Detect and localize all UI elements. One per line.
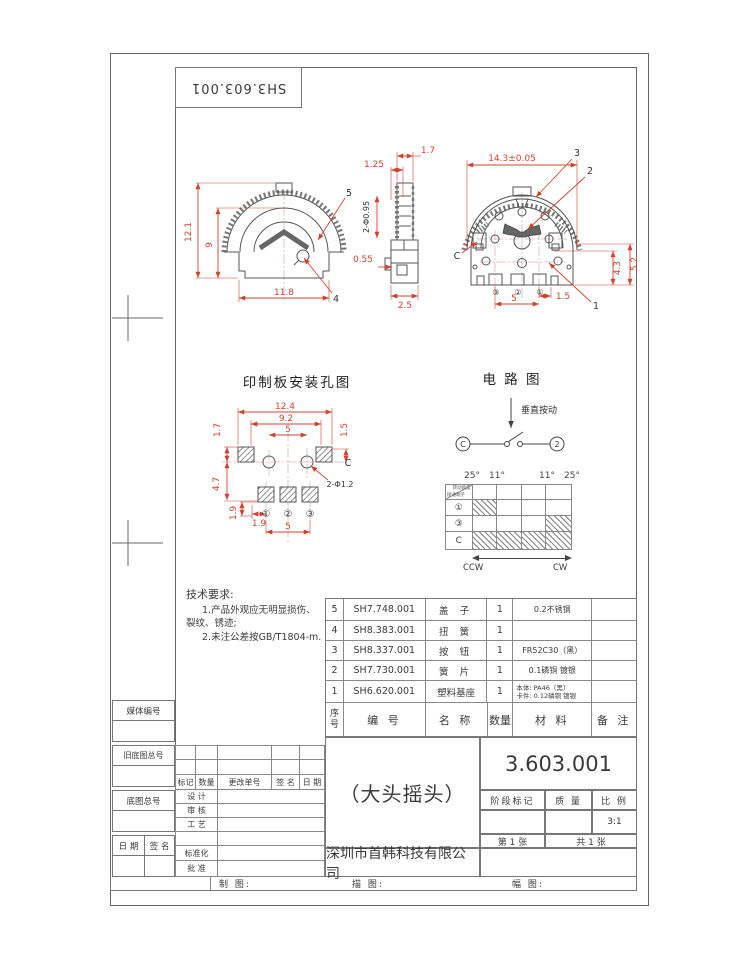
bom-row: 3 SH8.337.001 按 钮 1 FR52C30（黑） [326,641,637,661]
media-number-label: 媒体编号 [126,705,160,717]
doc-code-rotated: SH3.603.001 [191,80,286,95]
bom-code: SH8.383.001 [344,621,426,640]
corner-bottom-label: 接通端子 [447,493,465,498]
old-base-number-value [112,765,175,787]
date-sign-header: 日 期 签 名 [112,835,175,856]
bom-material [513,621,592,640]
old-base-number-cell: 旧底图总号 [112,745,175,766]
bom-qty: 1 [487,621,513,640]
scale-label: 比 例 [601,794,628,807]
tech-req-title: 技术要求: [186,588,336,602]
bom-seq: 4 [326,621,344,640]
mass-value-cell [545,810,592,834]
angle-grid-corner: 转动角度 接通端子 [446,485,473,499]
angle-tick: 25° [464,471,480,481]
tech-req-line: 2.未注公差按GB/T1804-m. [186,631,336,645]
media-number-value [112,720,175,742]
cw-label: CW [553,563,567,573]
scale-value-cell: 3:1 [592,810,637,834]
bom-remark [592,621,637,640]
bom-row: 1 SH6.620.001 塑料基座 1 本体: PA46（黑） 卡件: 0.1… [326,681,637,703]
angle-tick: 11° [539,471,555,481]
bom-qty: 1 [487,661,513,680]
sig-label: 审 核 [175,804,218,817]
bom-qty: 1 [487,641,513,660]
bom-header-remark: 备 注 [592,703,637,736]
bom-name: 簧 片 [426,661,488,680]
sig-label: 工 艺 [175,818,218,831]
rev-h-date: 日 期 [300,775,325,789]
media-number-cell: 媒体编号 [112,700,175,721]
angle-row-label: C [446,532,473,549]
tech-req-line: 裂纹、锈迹; [186,617,336,631]
bom-header-seq: 序号 [326,703,344,736]
bom-seq: 5 [326,599,344,620]
bom-table: 5 SH7.748.001 盖 子 1 0.2不锈钢 4 SH8.383.001… [325,598,637,737]
bom-name: 扭 簧 [426,621,488,640]
ccw-label: CCW [463,563,483,573]
bom-name: 塑料基座 [426,681,488,702]
sign-label: 签 名 [145,836,174,855]
angle-row-label: ① [446,500,473,515]
sheet-total-cell: 共 1 张 [545,834,637,848]
rev-h-qty: 数量 [196,775,218,789]
stage-label: 阶段标记 [490,794,534,807]
angle-row-label: ③ [446,516,473,531]
title-block-empty-cell [480,848,637,877]
scale-value: 3:1 [607,817,621,827]
technical-requirements: 技术要求: 1.产品外观应无明显损伤、 裂纹、锈迹; 2.未注公差按GB/T18… [186,588,336,644]
bom-material: FR52C30（黑） [513,641,592,660]
bom-material: 0.2不锈钢 [513,599,592,620]
bom-remark [592,641,637,660]
sheet-no: 第 1 张 [498,835,527,848]
bom-header-code: 编 号 [344,703,426,736]
bom-qty: 1 [487,681,513,702]
mass-label-cell: 质 量 [545,790,592,810]
old-base-number-label: 旧底图总号 [124,750,164,761]
mass-label: 质 量 [555,794,582,807]
rev-h-change-no: 更改单号 [218,775,272,789]
base-number-label: 底图总号 [126,795,160,807]
sig-row-check: 审 核 [175,804,325,818]
angle-tick: 11° [489,471,505,481]
drawing-number-cell: 3.603.001 [480,737,637,790]
bom-code: SH7.748.001 [344,599,426,620]
trace-label: 描 图: [344,877,504,890]
company-cell: 深圳市首韩科技有限公司 [325,848,480,877]
rev-h-sign: 签 名 [272,775,300,789]
corner-top-label: 转动角度 [453,486,471,491]
revision-header-row: 标记 数量 更改单号 签 名 日 期 [175,775,325,790]
bom-header-material: 材 料 [513,703,592,736]
bom-seq: 1 [326,681,344,702]
revision-block: 标记 数量 更改单号 签 名 日 期 设 计 审 核 工 艺 标准化 批 准 [175,745,325,877]
base-number-cell: 底图总号 [112,790,175,811]
stage-value-cell [480,810,545,834]
bom-remark [592,681,637,702]
bom-seq: 3 [326,641,344,660]
date-label: 日 期 [113,836,145,855]
bom-row: 4 SH8.383.001 扭 簧 1 [326,621,637,641]
bom-header-row: 序号 编 号 名 称 数量 材 料 备 注 [326,703,637,736]
sig-row-standard: 标准化 [175,846,325,861]
angle-grid: 转动角度 接通端子 ① ③ C [445,484,572,550]
bom-row: 2 SH7.730.001 簧 片 1 0.1磷铜 镀银 [326,661,637,681]
sheet-no-cell: 第 1 张 [480,834,545,848]
sheet-total: 共 1 张 [576,835,605,848]
bom-material: 0.1磷铜 镀银 [513,661,592,680]
sig-row-process: 工 艺 [175,818,325,832]
bom-header-qty: 数量 [488,703,514,736]
bom-seq: 2 [326,661,344,680]
sig-row-blank [175,832,325,846]
tech-req-line: 1.产品外观应无明显损伤、 [186,604,336,618]
bom-material-2: 卡件: 0.12磷铜 镀银 [516,692,576,700]
sig-label: 设 计 [175,790,218,803]
bom-material: 本体: PA46（黑） [516,684,569,692]
stage-label-cell: 阶段标记 [480,790,545,810]
part-name-cell: （大头摇头） [325,737,480,848]
bottom-strip: 制 图: 描 图: 幅 图: [110,877,637,891]
bom-code: SH8.337.001 [344,641,426,660]
bom-name: 按 钮 [426,641,488,660]
sig-label: 批 准 [175,861,218,876]
draw-label: 制 图: [211,877,344,890]
rotation-arrow [475,558,569,559]
bom-code: SH6.620.001 [344,681,426,702]
part-name: （大头摇头） [340,778,466,807]
rev-h-mark: 标记 [175,775,196,789]
angle-tick: 25° [564,471,580,481]
drawing-sheet: { "sheet": { "code_top": "SH3.603.001" }… [0,0,740,958]
bom-row: 5 SH7.748.001 盖 子 1 0.2不锈钢 [326,599,637,621]
sig-label: 标准化 [175,846,218,860]
sig-label [175,832,218,845]
bom-remark [592,599,637,620]
drawing-number: 3.603.001 [505,752,612,776]
bom-name: 盖 子 [426,599,488,620]
sig-row-design: 设 计 [175,790,325,804]
date-sign-value [112,855,175,877]
bom-header-name: 名 称 [426,703,488,736]
sig-row-approve: 批 准 [175,861,325,877]
bom-qty: 1 [487,599,513,620]
angle-table: 25° 11° 11° 25° 转动角度 接通端子 ① ③ C CCW CW [445,471,579,581]
scale-label-cell: 比 例 [592,790,637,810]
bom-remark [592,661,637,680]
bom-code: SH7.730.001 [344,661,426,680]
doc-code-box: SH3.603.001 [175,67,302,108]
size-label: 幅 图: [504,877,636,890]
base-number-value [112,810,175,832]
